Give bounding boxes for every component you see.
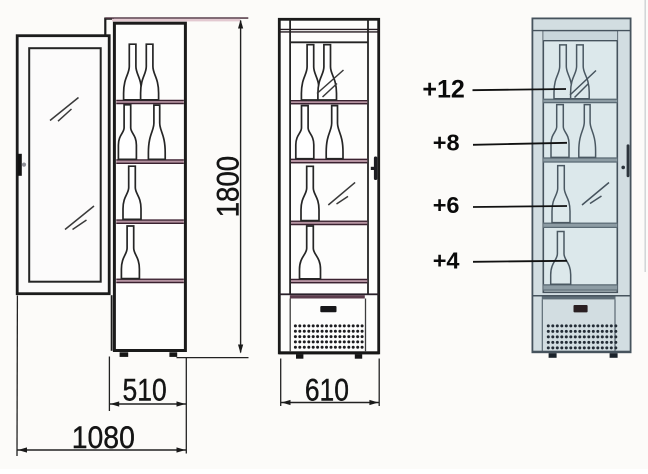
svg-text:+8: +8 — [433, 129, 460, 155]
svg-text:1800: 1800 — [211, 156, 246, 218]
svg-text:+4: +4 — [433, 247, 460, 273]
svg-text:510: 510 — [123, 374, 167, 409]
svg-text:1080: 1080 — [72, 420, 135, 455]
svg-text:+12: +12 — [422, 76, 464, 104]
svg-text:610: 610 — [305, 374, 349, 409]
svg-text:+6: +6 — [433, 192, 460, 218]
